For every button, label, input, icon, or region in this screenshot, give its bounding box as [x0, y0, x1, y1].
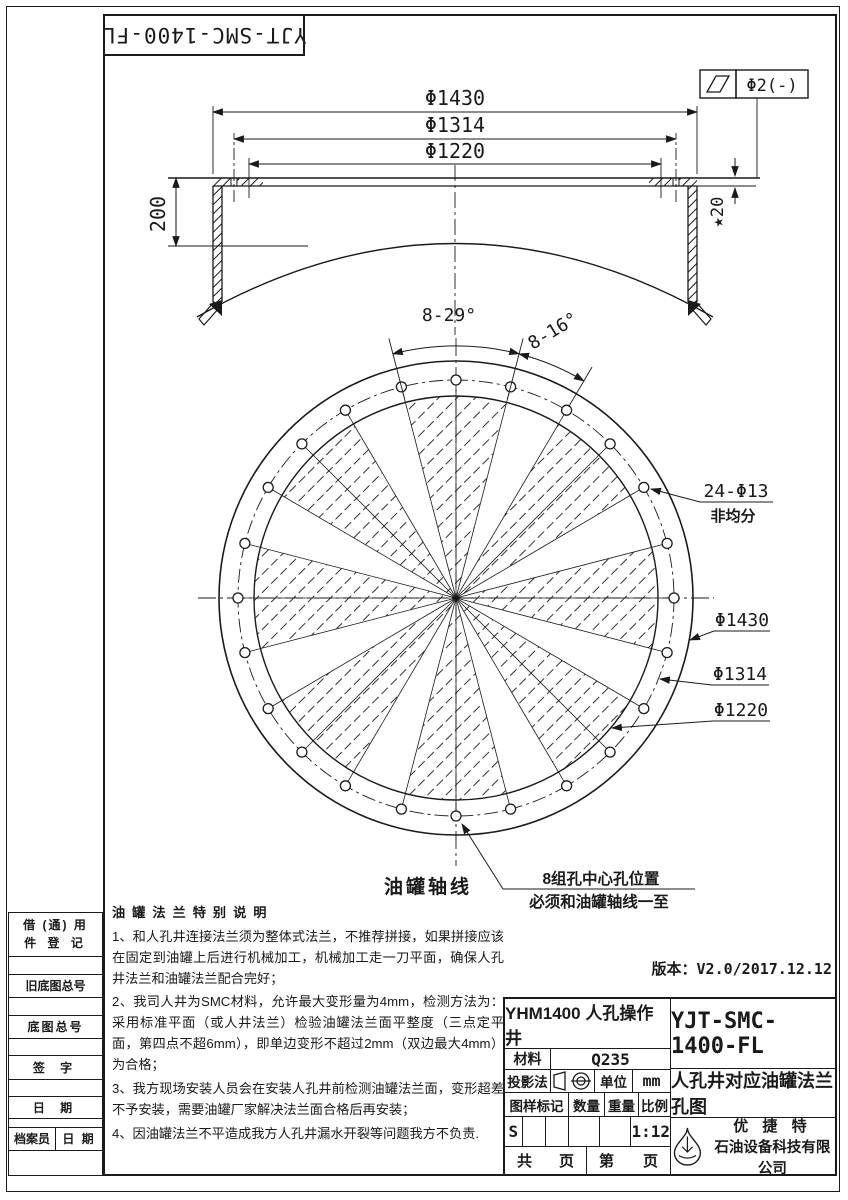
signature-cell: 签 字	[9, 1056, 102, 1080]
blank-cell	[546, 1117, 569, 1146]
mark-value: S	[505, 1117, 523, 1146]
unit-label: 单位	[595, 1070, 633, 1092]
notes-title: 油罐法兰特别说明	[112, 903, 504, 924]
weight-label: 重量	[605, 1093, 639, 1116]
company-logo-drop-icon	[671, 1123, 704, 1169]
sheet-number-cell: 第 页	[587, 1147, 670, 1174]
drawing-number-rotated: YJT-SMC-1400-FL	[102, 23, 307, 47]
blank-cell	[600, 1117, 631, 1146]
qty-label: 数量	[569, 1093, 605, 1116]
company-name-full: 石油设备科技有限公司	[710, 1136, 835, 1178]
blank-cell	[9, 1119, 102, 1128]
note-item-4: 4、因油罐法兰不平造成我方人孔井漏水开裂等问题我方不负责.	[112, 1124, 504, 1145]
version-label: 版本：V2.0/2017.12.12	[560, 958, 832, 979]
first-angle-projection-icon	[552, 1071, 594, 1091]
projection-label: 投影法	[505, 1070, 551, 1092]
company-name-short: 优 捷 特	[710, 1115, 835, 1136]
old-base-drawing-no-cell: 旧底图总号	[9, 975, 102, 998]
projection-symbol-cell	[551, 1070, 595, 1092]
blank-cell	[9, 1039, 102, 1057]
borrowed-parts-line2: 件 登 记	[24, 934, 87, 952]
material-label: 材料	[505, 1049, 551, 1069]
archival-table: 借 (通) 用 件 登 记 旧底图总号 底图总号 签 字 日 期 档案员 日 期	[8, 912, 103, 1176]
title-block: YHM1400 人孔操作井 材料 Q235 投影法	[503, 997, 837, 1176]
total-sheets-cell: 共 页	[505, 1147, 587, 1174]
blank-cell	[9, 998, 102, 1016]
mark-label: 图样标记	[505, 1093, 569, 1116]
blank-cell	[9, 1080, 102, 1097]
material-value: Q235	[551, 1049, 670, 1069]
product-model: YHM1400 人孔操作井	[505, 999, 670, 1048]
archivist-cell: 档案员	[9, 1128, 56, 1150]
unit-value: mm	[633, 1070, 670, 1092]
borrowed-parts-register-cell: 借 (通) 用 件 登 记	[9, 913, 102, 957]
drawing-title: 人孔井对应油罐法兰孔图	[671, 1069, 835, 1117]
blank-cell	[523, 1117, 547, 1146]
note-item-1: 1、和人孔井连接法兰须为整体式法兰，不推荐拼接，如果拼接应该在固定到油罐上后进行…	[112, 927, 504, 990]
base-drawing-no-cell: 底图总号	[9, 1016, 102, 1039]
archivist-date-cell: 日 期	[56, 1128, 102, 1150]
scale-value: 1:12	[631, 1117, 670, 1146]
engineering-drawing-page: Φ1430 Φ1314 Φ1220 200 ★20 Φ2(-)	[0, 0, 848, 1200]
drawing-number: YJT-SMC-1400-FL	[671, 999, 835, 1068]
date-cell: 日 期	[9, 1097, 102, 1119]
blank-cell	[569, 1117, 600, 1146]
note-item-2: 2、我司人井为SMC材料，允许最大变形量为4mm，检测方法为：采用标准平面（或人…	[112, 992, 504, 1075]
blank-cell	[9, 957, 102, 975]
blank-cell	[9, 1151, 102, 1175]
archivist-date-row: 档案员 日 期	[9, 1128, 102, 1151]
note-item-3: 3、我方现场安装人员会在安装人孔井前检测油罐法兰面，变形超差不予安装，需要油罐厂…	[112, 1079, 504, 1121]
special-notes: 油罐法兰特别说明 1、和人孔井连接法兰须为整体式法兰，不推荐拼接，如果拼接应该在…	[112, 903, 504, 1147]
drawing-number-corner-box: YJT-SMC-1400-FL	[103, 14, 305, 56]
borrowed-parts-line1: 借 (通) 用	[23, 916, 88, 934]
scale-label: 比例	[639, 1093, 670, 1116]
